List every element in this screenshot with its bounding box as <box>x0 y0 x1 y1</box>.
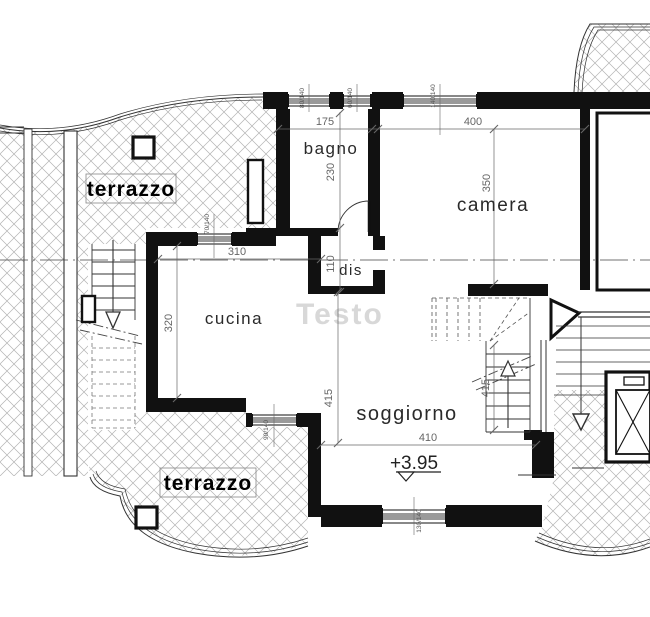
level-marker: +3.95 <box>390 453 441 481</box>
dim-cucina-height: 320 <box>163 314 175 332</box>
window-cucina-bottom <box>250 413 299 427</box>
level-triangle-icon <box>398 472 414 481</box>
dis-label: dis <box>339 262 363 279</box>
wall-stub-terrace <box>248 160 263 223</box>
watermark-text: Testo <box>296 298 384 331</box>
terrace-top-right-hatch <box>574 24 650 92</box>
cucina-label: cucina <box>205 309 263 328</box>
dim-bagno-height: 230 <box>325 163 337 181</box>
dim-stair-run: 415 <box>480 379 492 397</box>
dim-camera-height: 350 <box>481 174 493 192</box>
level-value: +3.95 <box>390 453 438 474</box>
win-dim-soggiorno: 130/140 <box>416 509 423 533</box>
dim-cucina-width: 310 <box>228 246 246 258</box>
floor-plan-svg: Testo <box>0 0 650 612</box>
chamfer-wall <box>551 300 579 338</box>
terrazzo-bottom-label: terrazzo <box>164 472 253 495</box>
soggiorno-label: soggiorno <box>356 403 457 425</box>
window-cucina-top <box>195 232 234 246</box>
pillar-bottom-terrace <box>136 507 157 528</box>
dim-bagno-width: 175 <box>316 116 334 128</box>
win-dim-cucina-bottom: 90/140 <box>263 420 270 440</box>
win-dim-cucina-top: 70/140 <box>204 214 211 234</box>
dim-dis-height: 110 <box>325 255 337 273</box>
dim-soggiorno-width: 410 <box>419 432 437 444</box>
pillar-top-terrace <box>133 137 154 158</box>
elevator <box>606 372 650 462</box>
pillar-stair <box>82 296 95 322</box>
win-dim-corridor: 60/140 <box>347 88 354 108</box>
dim-soggiorno-height: 415 <box>323 389 335 407</box>
bagno-label: bagno <box>304 139 359 158</box>
win-dim-bagno: 80/140 <box>299 88 306 108</box>
terrazzo-top-label: terrazzo <box>87 178 176 201</box>
win-dim-camera: 140/140 <box>430 84 437 108</box>
dim-camera-width: 400 <box>464 116 482 128</box>
bagno-door <box>338 201 369 232</box>
camera-label: camera <box>457 195 529 216</box>
neighbor-room-outline <box>597 113 650 290</box>
